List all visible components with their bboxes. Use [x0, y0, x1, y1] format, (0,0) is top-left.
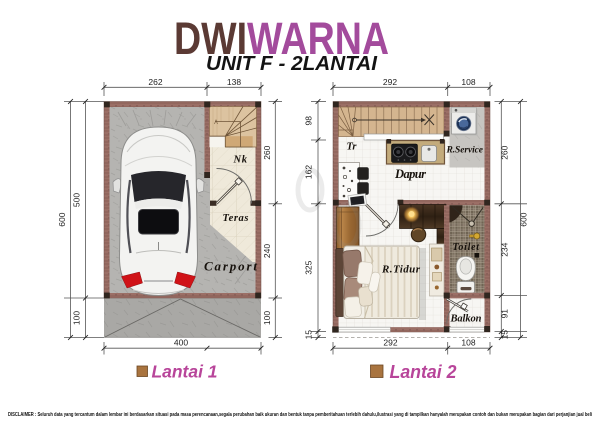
- svg-text:108: 108: [461, 77, 475, 87]
- svg-text:Tr: Tr: [347, 142, 358, 153]
- svg-text:292: 292: [383, 77, 397, 87]
- svg-text:400: 400: [174, 338, 188, 348]
- svg-text:600: 600: [519, 212, 529, 226]
- svg-text:DISCLAIMER : Seluruh data yang: DISCLAIMER : Seluruh data yang tercantum…: [8, 412, 592, 418]
- svg-text:91: 91: [500, 309, 510, 319]
- svg-text:Teras: Teras: [223, 213, 249, 224]
- svg-text:500: 500: [72, 193, 82, 207]
- svg-text:138: 138: [227, 77, 241, 87]
- svg-text:Toilet: Toilet: [453, 242, 481, 253]
- svg-text:UNIT F - 2LANTAI: UNIT F - 2LANTAI: [206, 52, 378, 75]
- svg-text:Lantai 1: Lantai 1: [152, 362, 218, 382]
- svg-text:260: 260: [262, 145, 272, 159]
- svg-text:108: 108: [461, 338, 475, 348]
- svg-text:Nk: Nk: [233, 155, 248, 166]
- svg-text:15: 15: [304, 330, 314, 340]
- svg-text:15: 15: [500, 330, 510, 340]
- svg-text:Dapur: Dapur: [394, 167, 426, 181]
- svg-text:162: 162: [304, 165, 314, 179]
- svg-text:234: 234: [500, 242, 510, 256]
- svg-text:260: 260: [500, 145, 510, 159]
- svg-text:600: 600: [57, 212, 67, 226]
- svg-text:325: 325: [304, 260, 314, 274]
- svg-text:Balkon: Balkon: [450, 314, 482, 325]
- svg-text:R.Service: R.Service: [446, 146, 484, 156]
- svg-text:240: 240: [262, 244, 272, 258]
- svg-text:98: 98: [304, 116, 314, 126]
- svg-text:292: 292: [383, 338, 397, 348]
- svg-text:Lantai 2: Lantai 2: [390, 362, 457, 382]
- svg-text:Carport: Carport: [204, 259, 257, 274]
- svg-text:262: 262: [148, 77, 162, 87]
- svg-text:100: 100: [72, 311, 82, 325]
- svg-text:R.Tidur: R.Tidur: [381, 264, 421, 276]
- svg-text:100: 100: [262, 311, 272, 325]
